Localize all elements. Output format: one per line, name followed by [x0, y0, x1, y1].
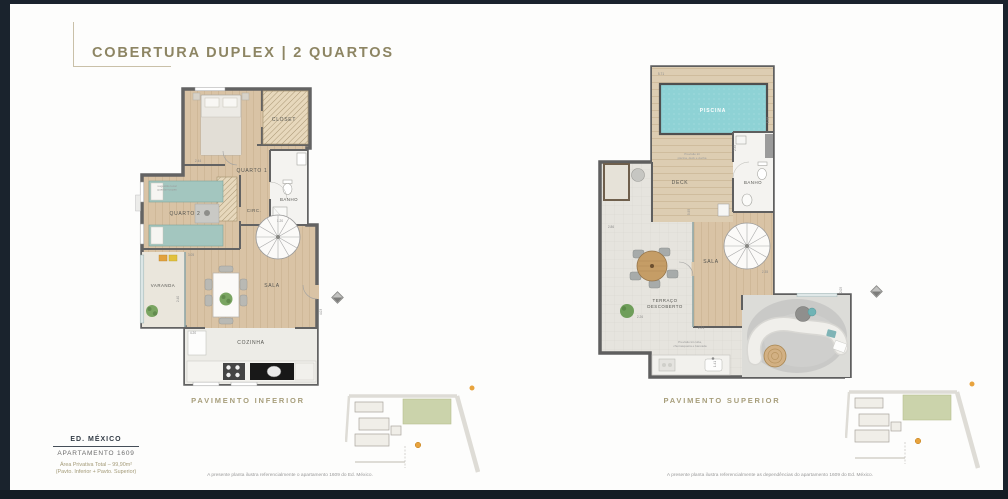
caption-pavimento-superior: PAVIMENTO SUPERIOR	[622, 396, 822, 405]
dim-label: 4.03	[319, 309, 323, 315]
disclaimer-lower: A presente planta ilustra referencialmen…	[160, 473, 420, 478]
room-label-quarto1: QUARTO 1	[237, 168, 268, 174]
room-label-piscina: PISCINA	[700, 108, 727, 114]
disclaimer-upper: A presente planta ilustra referencialmen…	[640, 473, 900, 478]
site-map-upper	[845, 378, 980, 473]
frame-right	[1003, 0, 1008, 499]
north-marker-icon	[970, 382, 975, 387]
dim-label: 2.40	[176, 296, 180, 302]
plant-detail	[622, 306, 626, 310]
brochure-page: COBERTURA DUPLEX | 2 QUARTOS	[0, 0, 1008, 499]
room-label-sala: SALA	[264, 283, 280, 289]
dim-label: 3.05	[188, 253, 194, 257]
site-map-lower	[345, 382, 480, 477]
note-pool-2: piscina, deck e ducha	[678, 156, 707, 160]
plant-icon	[620, 304, 634, 318]
double-bed-icon	[193, 93, 249, 155]
dim-label: 2.26	[637, 315, 643, 319]
park-area	[903, 395, 951, 420]
floor-plan-lower: QUARTO 1 CLOSET BANHO CIRC. QUARTO 2 VAR…	[135, 87, 335, 392]
room-label-terraco-1: TERRAÇO	[653, 298, 678, 303]
location-marker-icon	[915, 438, 921, 444]
room-label-banho: BANHO	[280, 197, 298, 202]
shower-icon	[718, 204, 729, 216]
lounge-furniture	[747, 299, 847, 373]
side-table-icon	[632, 169, 645, 182]
location-marker-icon	[415, 442, 421, 448]
dim-label: 2.35	[762, 270, 768, 274]
building-name: ED. MÉXICO	[38, 436, 154, 443]
floor-plan-upper: PISCINA DECK BANHO SALA TERRAÇO DESCOBER…	[597, 62, 877, 392]
dim-label: 1.20	[277, 219, 283, 223]
unit-info-block: ED. MÉXICO APARTAMENTO 1609 Área Privati…	[38, 436, 154, 477]
caption-pavimento-inferior: PAVIMENTO INFERIOR	[148, 396, 348, 405]
dim-label: 2.44	[195, 159, 201, 163]
spiral-stair-icon	[724, 223, 770, 269]
room-label-cozinha: COZINHA	[237, 340, 264, 346]
frame-top	[0, 0, 1008, 4]
room-label-sala: SALA	[703, 259, 719, 265]
dim-label: 2.21	[698, 326, 704, 330]
dim-label: 1.98	[766, 117, 770, 123]
room-label-deck: DECK	[672, 180, 689, 186]
dim-label: 5.71	[658, 72, 664, 76]
dim-label: 2.86	[608, 225, 614, 229]
lounge-window	[797, 293, 837, 296]
bbq-counter	[652, 355, 730, 375]
north-marker-icon	[470, 386, 475, 391]
room-label-varanda: VARANDA	[151, 283, 175, 288]
dim-label: 2.05	[839, 287, 843, 293]
dim-label: 4.20	[190, 331, 196, 335]
page-title: COBERTURA DUPLEX | 2 QUARTOS	[92, 45, 394, 61]
frame-left	[0, 0, 10, 499]
planter-icon	[604, 164, 629, 200]
room-label-terraco-2: DESCOBERTO	[647, 304, 683, 309]
note-wardrobe-2: guarda-roupas	[157, 188, 177, 192]
room-label-banho: BANHO	[744, 180, 762, 185]
dim-label: 2.35	[733, 145, 737, 151]
area-detail: (Pavto. Inferior + Pavto. Superior)	[38, 469, 154, 476]
info-divider	[53, 446, 139, 447]
dim-label: 1.41	[713, 361, 717, 367]
area-total: Área Privativa Total – 99,90m²	[38, 462, 154, 469]
apartment-number: APARTAMENTO 1609	[38, 450, 154, 457]
note-bbq-2: churrasqueira e bancada	[673, 344, 707, 348]
room-label-closet: CLOSET	[272, 117, 296, 123]
varanda-glass-rail	[140, 255, 144, 323]
room-label-circ: CIRC.	[247, 208, 261, 213]
dim-label: 5.95	[687, 209, 691, 215]
park-area	[403, 399, 451, 424]
room-label-quarto2: QUARTO 2	[170, 211, 201, 217]
frame-bottom	[0, 490, 1008, 499]
